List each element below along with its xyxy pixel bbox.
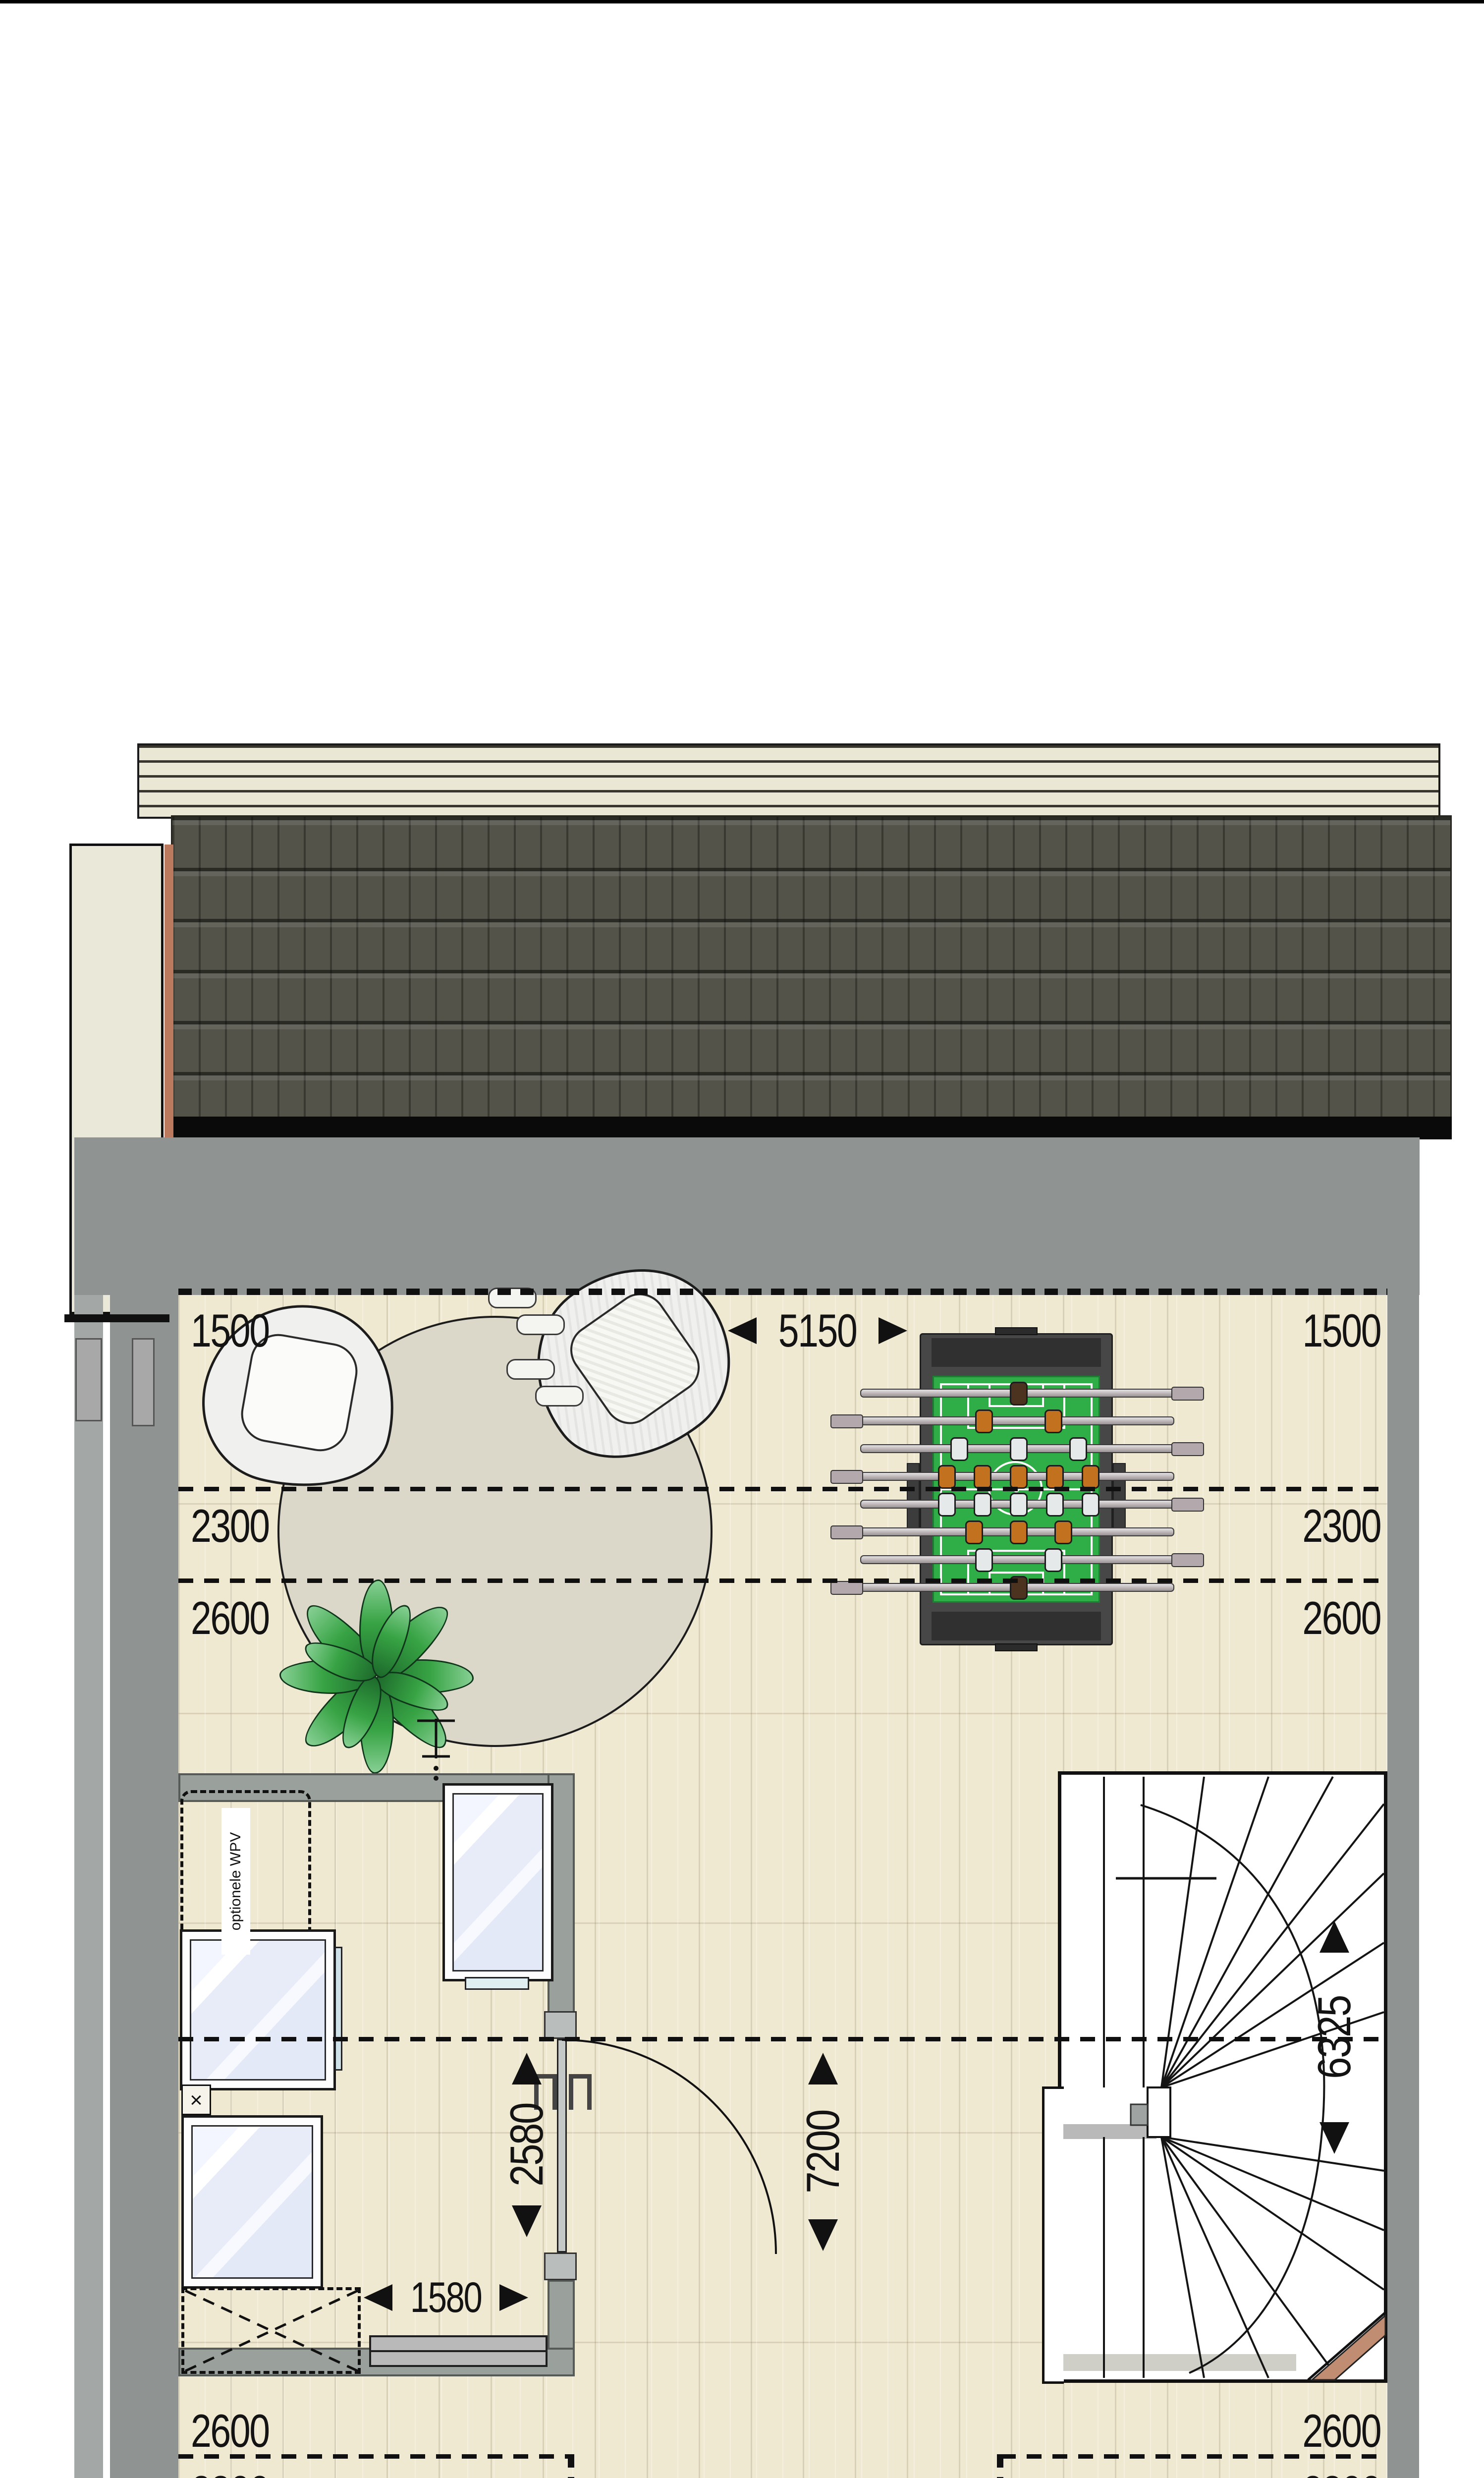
stair-newel	[1148, 2087, 1170, 2137]
dim-top-left: 1500	[191, 1307, 288, 1354]
arrow-down-icon	[808, 2219, 838, 2251]
line-art-overlay	[0, 0, 1484, 2478]
arrow-right-icon	[879, 1317, 907, 1344]
dim-room-depth: 7200	[796, 2053, 850, 2251]
dim-left-2600: 2600	[191, 1595, 288, 1641]
contour-2300-upper	[178, 1487, 1387, 1491]
stair-newel-block	[1131, 2104, 1148, 2125]
dim-right-2600: 2600	[1237, 1595, 1380, 1641]
arrow-up-icon	[808, 2053, 838, 2084]
dim-left-2300: 2300	[191, 1503, 288, 1549]
arrow-down-icon	[1319, 2122, 1349, 2154]
dim-right-2300: 2300	[1237, 1503, 1380, 1549]
door-swing-arc	[562, 2040, 776, 2254]
wall-line-top	[178, 1289, 1387, 1295]
dim-closet-depth: 2580	[499, 2053, 554, 2237]
dormer-contour-left	[568, 2454, 574, 2478]
ridge-height-line	[178, 2037, 1387, 2041]
dim-closet-width: 1580	[367, 2278, 525, 2317]
arrow-right-icon	[499, 2284, 528, 2311]
section-marker	[417, 1719, 455, 1758]
dim-bottom-left-2600: 2600	[191, 2408, 288, 2454]
dim-bottom-right-2600: 2600	[1237, 2408, 1380, 2454]
optional-zone-diagonals	[185, 2291, 358, 2371]
attic-floor-plan: optionele WPV ×	[0, 0, 1484, 2478]
arrow-up-icon	[1319, 1921, 1349, 1953]
contour-2600-upper	[178, 1578, 1387, 1583]
stair-bevel-brick	[1312, 2315, 1385, 2380]
dim-top-right: 1500	[1237, 1307, 1380, 1354]
dim-top-center: 5150	[704, 1307, 932, 1354]
dim-bottom-left-2300: 2300	[191, 2469, 288, 2478]
arrow-left-icon	[364, 2284, 392, 2311]
dim-stair-depth: 6325	[1307, 1921, 1362, 2154]
arrow-down-icon	[512, 2205, 542, 2237]
dim-bottom-right-2300: 2300	[1237, 2469, 1380, 2478]
arrow-left-icon	[728, 1317, 757, 1344]
dormer-contour-right	[997, 2454, 1003, 2478]
arrow-up-icon	[512, 2053, 542, 2084]
